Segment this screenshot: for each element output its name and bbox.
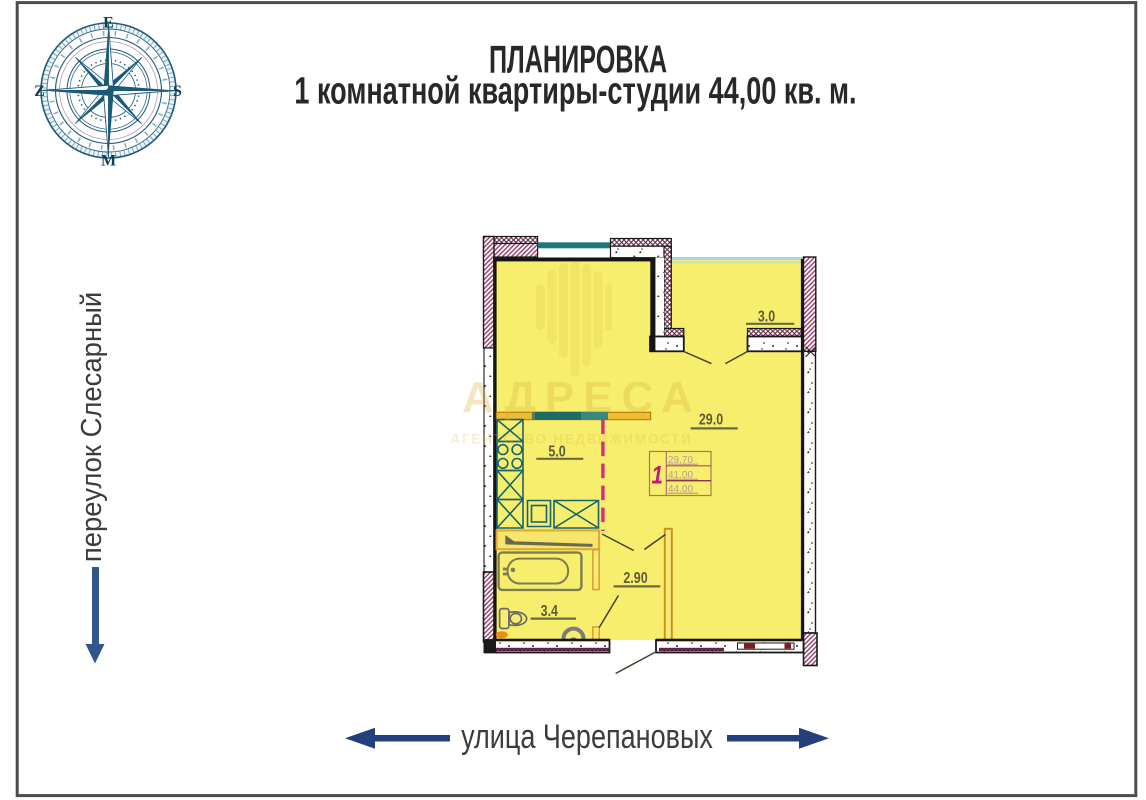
svg-text:1 комнатной квартиры-студии 44: 1 комнатной квартиры-студии 44,00 кв. м.	[294, 69, 856, 112]
svg-text:АДРЕСА: АДРЕСА	[462, 373, 702, 422]
svg-text:2.90: 2.90	[623, 570, 647, 588]
svg-text:переулок Слесарный: переулок Слесарный	[74, 292, 107, 562]
svg-text:АГЕНТСТВО НЕДВИЖИМОСТИ: АГЕНТСТВО НЕДВИЖИМОСТИ	[451, 432, 693, 447]
svg-text:S: S	[173, 83, 182, 100]
svg-text:1: 1	[652, 461, 663, 489]
svg-text:улица Черепановых: улица Черепановых	[461, 717, 713, 756]
svg-text:E: E	[103, 15, 114, 32]
svg-text:29.0: 29.0	[699, 411, 723, 429]
svg-text:M: M	[101, 153, 116, 170]
svg-text:Z: Z	[34, 83, 45, 100]
